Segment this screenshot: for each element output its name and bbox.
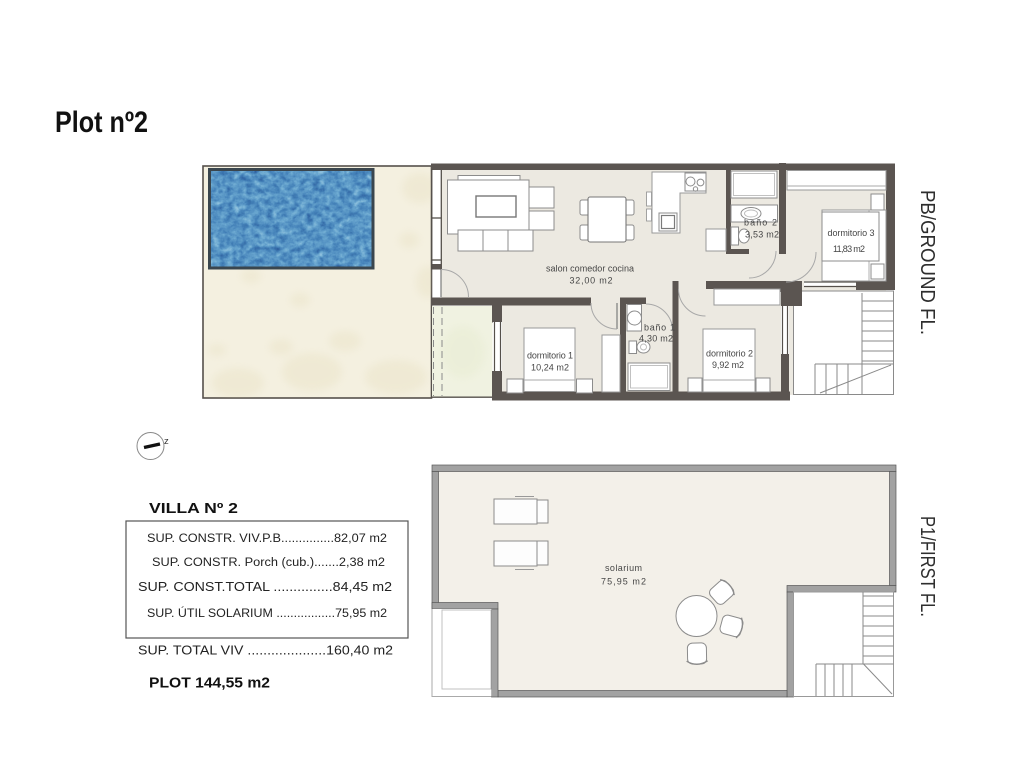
svg-text:4,30 m2: 4,30 m2 [639,334,673,344]
svg-text:baño 1: baño 1 [644,323,675,333]
svg-text:75,95 m2: 75,95 m2 [601,577,646,587]
svg-text:PLOT 144,55 m2: PLOT 144,55 m2 [149,676,270,692]
svg-text:SUP. TOTAL VIV ...............: SUP. TOTAL VIV ....................160,4… [138,644,393,658]
svg-text:32,00 m2: 32,00 m2 [570,276,613,286]
svg-text:SUP. CONSTR. Porch (cub.).....: SUP. CONSTR. Porch (cub.).......2,38 m2 [152,557,385,569]
svg-text:baño 2: baño 2 [744,218,777,228]
svg-text:11,83 m2: 11,83 m2 [833,244,865,254]
svg-text:P1/FIRST FL.: P1/FIRST FL. [916,516,938,617]
svg-text:PB/GROUND FL.: PB/GROUND FL. [916,190,938,335]
svg-text:10,24 m2: 10,24 m2 [531,363,569,373]
svg-text:VILLA Nº 2: VILLA Nº 2 [149,501,238,517]
svg-text:SUP. CONSTR. VIV.P.B..........: SUP. CONSTR. VIV.P.B...............82,07… [147,533,387,545]
svg-text:dormitorio 2: dormitorio 2 [706,349,753,359]
svg-text:salon comedor cocina: salon comedor cocina [546,264,634,274]
svg-text:z: z [164,436,169,447]
svg-text:solarium: solarium [605,563,642,573]
svg-text:Plot nº2: Plot nº2 [55,106,148,139]
svg-text:dormitorio 3: dormitorio 3 [828,228,875,238]
svg-text:SUP. CONST.TOTAL .............: SUP. CONST.TOTAL ...............84,45 m2 [138,580,392,594]
svg-text:9,92 m2: 9,92 m2 [712,360,744,370]
svg-text:SUP. ÚTIL SOLARIUM ...........: SUP. ÚTIL SOLARIUM .................75,9… [147,607,387,620]
svg-text:dormitorio 1: dormitorio 1 [527,351,573,361]
svg-text:3,53 m2: 3,53 m2 [745,230,779,240]
